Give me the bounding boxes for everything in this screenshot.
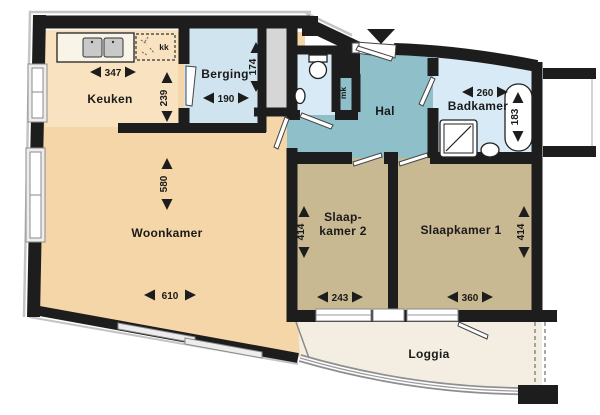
room-label-berging: Berging	[201, 67, 248, 81]
window-left-1-inner	[32, 68, 43, 118]
room-label-keuken: Keuken	[87, 92, 132, 106]
room-label-badkamer: Badkamer	[448, 99, 508, 113]
room-label-loggia: Loggia	[408, 347, 449, 361]
label-meterkast: mk	[338, 87, 348, 100]
room-label-slaapkamer2-line1: Slaap-	[324, 210, 362, 224]
svg-text:243: 243	[332, 293, 349, 304]
room-label-hal: Hal	[375, 104, 395, 118]
svg-text:414: 414	[296, 223, 307, 240]
wall-neighbor-stub-bottom	[543, 146, 596, 157]
badkamer-sink	[481, 143, 499, 157]
room-label-slaapkamer1: Slaapkamer 1	[421, 223, 502, 237]
faucet-dot	[112, 41, 114, 43]
svg-text:190: 190	[218, 94, 235, 105]
room-label-woonkamer: Woonkamer	[131, 226, 202, 240]
window-bedrooms-mid	[373, 309, 404, 321]
wc-sink	[295, 89, 305, 104]
svg-text:360: 360	[462, 293, 479, 304]
svg-text:347: 347	[105, 68, 122, 79]
svg-text:183: 183	[510, 108, 521, 125]
sink-right	[104, 38, 123, 57]
toilet-bowl	[310, 62, 327, 79]
floor-plan-canvas: Keuken Berging Hal Badkamer Woonkamer Sl…	[0, 0, 600, 415]
faucet-dot	[91, 41, 93, 43]
sink-left	[83, 38, 102, 57]
label-koelkast: kk	[159, 42, 169, 52]
svg-text:239: 239	[159, 89, 170, 106]
room-label-slaapkamer2-line2: kamer 2	[319, 224, 366, 238]
svg-text:580: 580	[159, 175, 170, 192]
svg-text:260: 260	[477, 88, 494, 99]
svg-text:174: 174	[248, 58, 259, 75]
svg-text:610: 610	[162, 291, 179, 302]
floor-plan: Keuken Berging Hal Badkamer Woonkamer Sl…	[0, 0, 600, 415]
loggia-wall-block	[518, 385, 558, 404]
svg-text:414: 414	[516, 223, 527, 240]
wall-neighbor-stub-top	[543, 68, 596, 79]
